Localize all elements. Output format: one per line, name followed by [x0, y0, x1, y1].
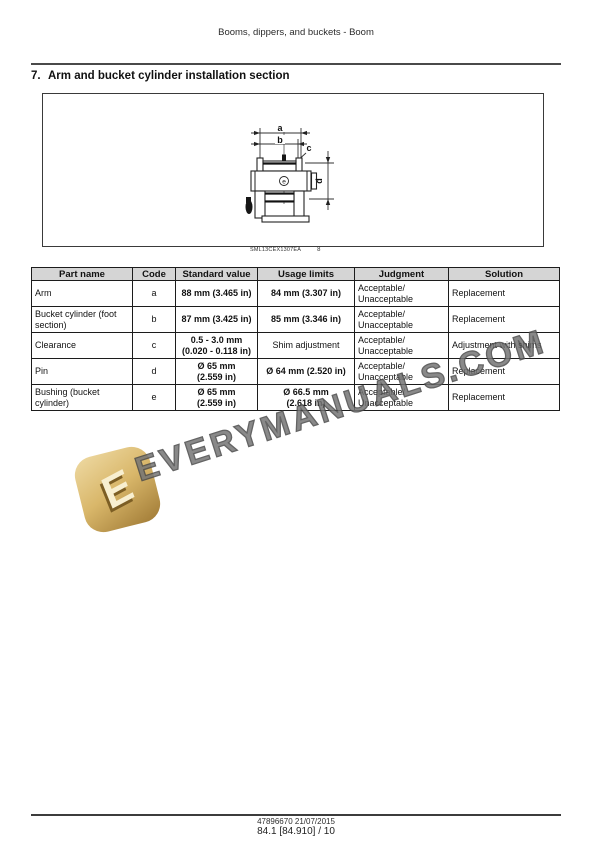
cell-part-name: Bushing (bucket cylinder)	[32, 385, 133, 411]
cell-part-name: Pin	[32, 359, 133, 385]
figure-caption: SML13CEX1307EA 8	[250, 247, 320, 253]
cell-usage-limits: 84 mm (3.307 in)	[258, 281, 355, 307]
cell-standard-value: Ø 65 mm (2.559 in)	[176, 385, 258, 411]
dim-label-b: b	[277, 135, 283, 145]
watermark-logo-letter: E	[95, 459, 140, 519]
section-title: Arm and bucket cylinder installation sec…	[48, 70, 290, 82]
footer-rule	[31, 814, 561, 816]
header-rule	[31, 63, 561, 65]
cell-part-name: Clearance	[32, 333, 133, 359]
cell-solution: Replacement	[449, 281, 560, 307]
cell-code: d	[133, 359, 176, 385]
cell-code: a	[133, 281, 176, 307]
cell-judgment: Acceptable/ Unacceptable	[355, 307, 449, 333]
figure-caption-index: 8	[317, 247, 320, 253]
section-number: 7.	[31, 70, 48, 82]
footer-page-reference: 84.1 [84.910] / 10	[31, 826, 561, 837]
cell-part-name: Bucket cylinder (foot section)	[32, 307, 133, 333]
running-header: Booms, dippers, and buckets - Boom	[31, 27, 561, 38]
cell-code: b	[133, 307, 176, 333]
manual-page: Booms, dippers, and buckets - Boom 7. Ar…	[0, 0, 612, 864]
dim-label-c: c	[306, 143, 311, 153]
table-header-row: Part name Code Standard value Usage limi…	[32, 268, 560, 281]
col-header-solution: Solution	[449, 268, 560, 281]
dim-label-d: d	[314, 178, 324, 184]
table-row: Bucket cylinder (foot section) b 87 mm (…	[32, 307, 560, 333]
col-header-part-name: Part name	[32, 268, 133, 281]
cell-solution: Replacement	[449, 385, 560, 411]
cell-standard-value: 87 mm (3.425 in)	[176, 307, 258, 333]
cell-standard-value: 0.5 - 3.0 mm (0.020 - 0.118 in)	[176, 333, 258, 359]
figure-caption-code: SML13CEX1307EA	[250, 247, 301, 253]
table-row: Arm a 88 mm (3.465 in) 84 mm (3.307 in) …	[32, 281, 560, 307]
col-header-judgment: Judgment	[355, 268, 449, 281]
figure-diagram: a b c e	[43, 94, 543, 246]
cell-standard-value: Ø 65 mm (2.559 in)	[176, 359, 258, 385]
figure-box: a b c e	[42, 93, 544, 247]
footer-doc-number-date: 47896670 21/07/2015	[31, 817, 561, 826]
col-header-usage-limits: Usage limits	[258, 268, 355, 281]
cell-standard-value: 88 mm (3.465 in)	[176, 281, 258, 307]
col-header-standard-value: Standard value	[176, 268, 258, 281]
cell-usage-limits: 85 mm (3.346 in)	[258, 307, 355, 333]
cell-usage-limits: Shim adjustment	[258, 333, 355, 359]
cell-solution: Replacement	[449, 307, 560, 333]
dim-label-e: e	[282, 179, 286, 186]
cell-judgment: Acceptable/ Unacceptable	[355, 281, 449, 307]
cell-code: e	[133, 385, 176, 411]
section-heading: 7. Arm and bucket cylinder installation …	[31, 70, 571, 82]
cell-part-name: Arm	[32, 281, 133, 307]
cell-code: c	[133, 333, 176, 359]
spec-table: Part name Code Standard value Usage limi…	[31, 267, 560, 411]
cell-usage-limits: Ø 64 mm (2.520 in)	[258, 359, 355, 385]
col-header-code: Code	[133, 268, 176, 281]
